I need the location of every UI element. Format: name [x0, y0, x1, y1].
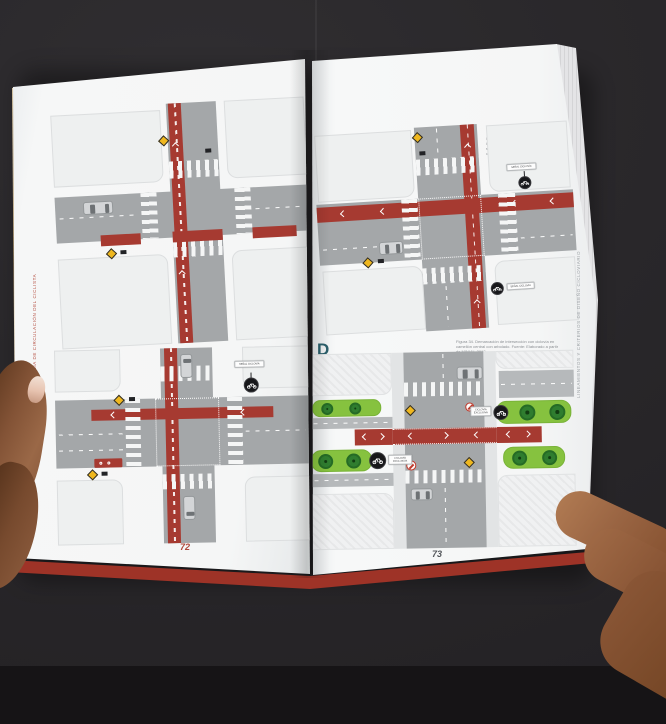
- crosswalk: [169, 159, 220, 179]
- bike-arrow: [380, 208, 387, 215]
- photo-scene: B Figura 32. Demarcación de cruce en int…: [0, 0, 666, 666]
- bike-crossing-center: [393, 427, 497, 445]
- city-block: [494, 256, 579, 325]
- margin-text-right: LINEAMIENTOS Y CRITERIOS DE DISEÑO CICLO…: [576, 248, 581, 398]
- car: [180, 354, 192, 378]
- bike-arrow: [506, 431, 513, 438]
- bike-lane-segment: [355, 429, 393, 446]
- tree: [346, 453, 361, 468]
- city-block: [232, 246, 317, 340]
- intersection-dotted-box: [418, 195, 485, 260]
- crosswalk: [405, 469, 485, 483]
- sign-plate: [102, 472, 108, 476]
- diagram-c-intersection: SEÑAL CICLOVÍA SEÑAL CICLOVÍA: [312, 118, 581, 337]
- city-block: [57, 479, 124, 545]
- bike-arrow: [378, 433, 385, 440]
- crosswalk: [498, 193, 519, 255]
- bike-lane-horizontal-segment: [252, 225, 297, 238]
- bike-sign-icon: [244, 377, 259, 392]
- city-block: [314, 130, 415, 203]
- side-road: [312, 473, 393, 487]
- car: [379, 241, 404, 255]
- sign-plate: [205, 148, 211, 152]
- bike-arrow: [474, 431, 481, 438]
- tree: [349, 402, 361, 414]
- lane-line: [314, 422, 391, 424]
- tree: [549, 404, 565, 420]
- city-block: [224, 97, 308, 179]
- crosswalk: [234, 187, 252, 234]
- sign-callout-label: CICLOVÍA EXCLUSIVA: [470, 406, 491, 416]
- green-median: [312, 399, 381, 417]
- city-block: [245, 475, 312, 541]
- sign-plate: [378, 259, 384, 263]
- bike-arrow: [340, 210, 347, 217]
- tree: [519, 404, 535, 420]
- bike-glyph: [107, 462, 110, 465]
- city-block: [54, 349, 121, 392]
- crosswalk: [173, 240, 224, 258]
- sign-callout-label: CICLOVÍA EXCLUSIVA: [388, 455, 412, 465]
- crosswalk: [140, 192, 158, 239]
- car: [457, 366, 483, 379]
- side-road: [499, 370, 574, 398]
- green-median: [311, 449, 372, 472]
- bike-box: [94, 458, 122, 468]
- city-block: [58, 254, 173, 350]
- bike-arrow: [179, 270, 186, 277]
- bike-arrow: [172, 142, 179, 149]
- bike-arrow: [110, 411, 117, 418]
- city-block: [322, 266, 426, 336]
- bike-arrow: [550, 197, 557, 204]
- intersection-dotted-box: [155, 397, 220, 466]
- diagram-b2-intersection: SEÑAL CICLOVÍA: [54, 345, 312, 545]
- crosswalk: [125, 399, 141, 467]
- bike-lane-segment: [497, 426, 542, 443]
- tree: [321, 403, 333, 415]
- page-left: B Figura 32. Demarcación de cruce en int…: [10, 56, 312, 580]
- page-right: C Figura 33. Demarcación de intersección…: [310, 40, 596, 576]
- backdrop-seam: [315, 0, 317, 66]
- city-block: [306, 353, 392, 396]
- crosswalk: [404, 381, 484, 396]
- sign-callout-label: SEÑAL CICLOVÍA: [234, 360, 264, 368]
- city-block: [309, 493, 395, 550]
- city-block: [495, 350, 573, 369]
- crosswalk: [227, 397, 243, 465]
- sign-plate: [419, 151, 425, 155]
- green-median: [503, 446, 565, 469]
- bike-arrow: [524, 430, 531, 437]
- lane-line: [315, 479, 392, 481]
- bike-arrow: [362, 433, 369, 440]
- lane-line: [501, 383, 572, 385]
- tree: [512, 451, 527, 466]
- bike-arrow: [408, 432, 415, 439]
- city-block: [50, 110, 164, 188]
- page-number-left: 72: [180, 542, 190, 552]
- crosswalk: [163, 473, 215, 489]
- sign-plate: [129, 397, 135, 401]
- page-number-right: 73: [432, 549, 442, 559]
- tree: [542, 450, 557, 465]
- bike-lane-horizontal-segment: [101, 233, 142, 246]
- diagram-d-intersection: CICLOVÍA EXCLUSIVA CICLOVÍA EXCLUSIVA: [306, 350, 576, 551]
- sign-plate: [120, 250, 126, 254]
- car: [83, 201, 114, 216]
- bike-glyph: [99, 462, 102, 465]
- bike-arrow: [442, 432, 449, 439]
- tree: [318, 454, 333, 469]
- bike-arrow: [464, 144, 471, 151]
- side-road: [311, 417, 392, 429]
- bike-arrow: [474, 299, 481, 306]
- diagram-b-intersection: [50, 97, 316, 350]
- car: [183, 496, 195, 520]
- bike-sign-icon: [369, 452, 386, 469]
- car: [411, 488, 433, 500]
